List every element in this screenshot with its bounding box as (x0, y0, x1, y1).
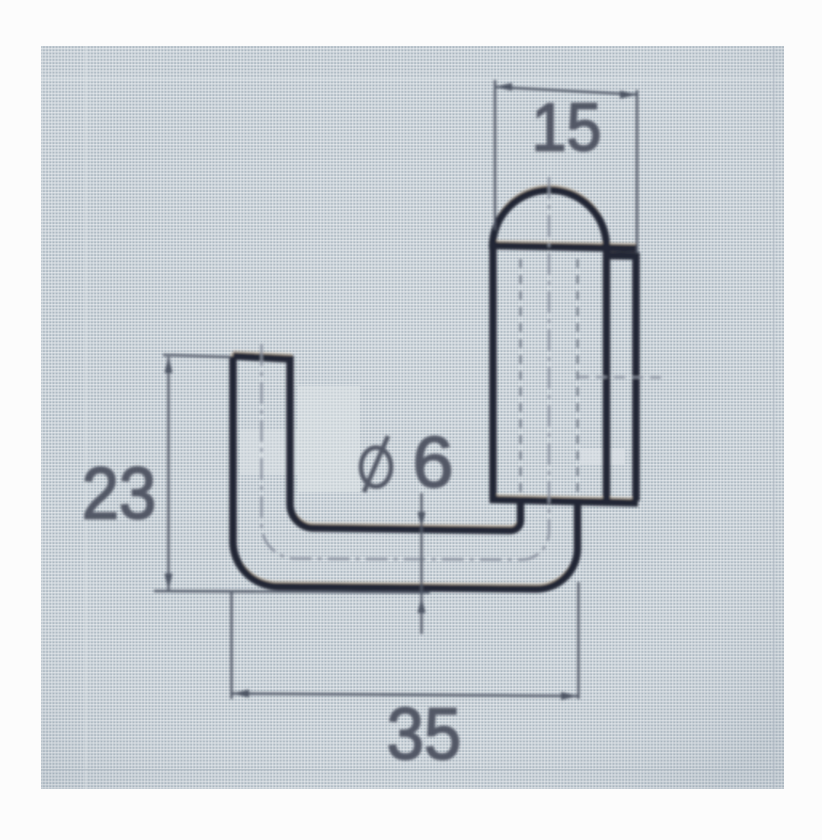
svg-text:15: 15 (531, 89, 601, 165)
svg-text:23: 23 (82, 452, 157, 535)
svg-text:35: 35 (387, 692, 462, 775)
svg-text:6: 6 (412, 422, 453, 503)
